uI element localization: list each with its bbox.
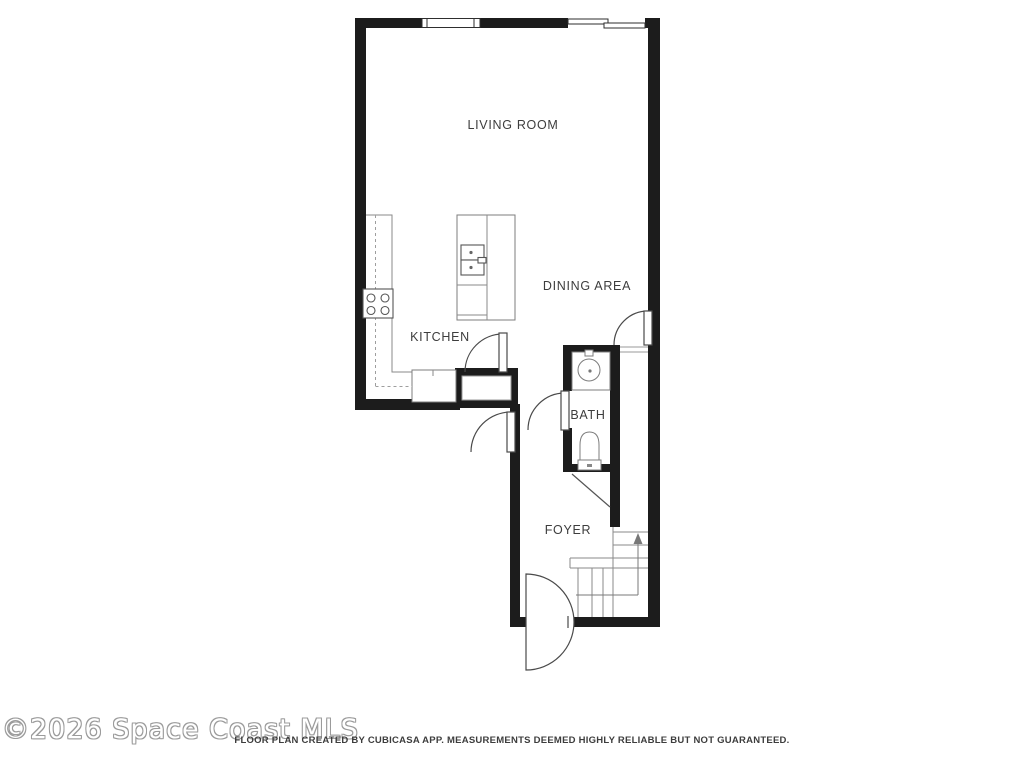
sink-drain [588, 369, 591, 372]
sink-drain [469, 266, 472, 269]
window-living-room [422, 19, 480, 28]
sink-drain [469, 251, 472, 254]
foyer-label: FOYER [545, 523, 592, 537]
door-kitchen-upper [465, 333, 507, 372]
door-leaf [644, 311, 652, 345]
sliding-door-icon [568, 19, 645, 28]
stairs [570, 474, 648, 617]
base-cabinet [412, 370, 456, 402]
under-stair-diagonal [572, 474, 610, 507]
room-labels: LIVING ROOM DINING AREA KITCHEN BATH FOY… [410, 118, 631, 537]
dining-area-label: DINING AREA [543, 279, 631, 293]
door-foyer-corridor [471, 412, 515, 452]
bathroom-sink-icon [572, 350, 610, 390]
door-bath [528, 391, 569, 430]
footer-disclaimer: FLOOR PLAN CREATED BY CUBICASA APP. MEAS… [0, 735, 1024, 746]
wall-top-middle-segment [480, 18, 568, 28]
burner [367, 294, 375, 302]
door-leaf [499, 333, 507, 372]
door-swing-half-circle [526, 574, 574, 670]
door-swing-arc [614, 311, 648, 345]
sliding-panel-right [604, 23, 645, 28]
door-swing-arc [465, 334, 503, 372]
bath-label: BATH [570, 408, 605, 422]
faucet-icon [585, 350, 593, 356]
toilet-bowl [580, 432, 599, 461]
vestibule-threshold [462, 376, 511, 400]
door-leaf [507, 412, 515, 452]
door-swing-arc [528, 393, 565, 430]
living-room-label: LIVING ROOM [467, 118, 558, 132]
door-swing-arc [471, 412, 511, 452]
wall-bottom-left-stub [510, 617, 527, 627]
wall-bottom-right [568, 617, 660, 627]
floor-plan-drawing: LIVING ROOM DINING AREA KITCHEN BATH FOY… [0, 0, 1024, 768]
sliding-panel-left [568, 19, 608, 24]
faucet-icon [478, 258, 486, 264]
wall-left [355, 18, 366, 410]
stove-body [363, 289, 393, 318]
burner [381, 294, 389, 302]
stove-icon [363, 289, 393, 318]
toilet-icon [578, 432, 601, 470]
kitchen-island [457, 215, 515, 320]
up-arrow-icon [634, 533, 643, 544]
kitchen-label: KITCHEN [410, 330, 470, 344]
wall-bath-left-upper [563, 345, 572, 391]
door-leaf [561, 391, 569, 430]
burner [367, 307, 375, 315]
walls [355, 18, 660, 627]
window-frame [422, 19, 480, 28]
floor-plan-page: LIVING ROOM DINING AREA KITCHEN BATH FOY… [0, 0, 1024, 768]
toilet-flush [587, 464, 592, 467]
burner [381, 307, 389, 315]
entry-door [526, 574, 574, 670]
wall-bath-right [610, 345, 620, 527]
